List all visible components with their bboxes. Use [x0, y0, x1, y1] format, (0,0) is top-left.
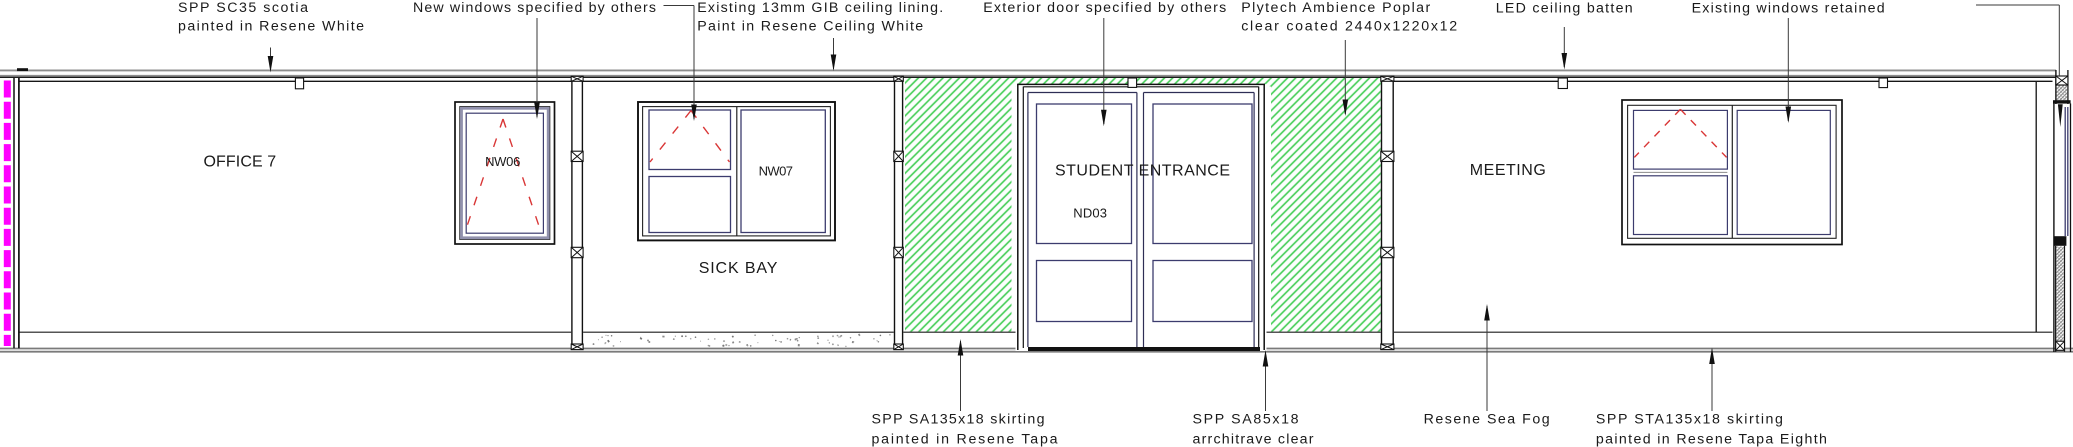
svg-text:LED ceiling batten: LED ceiling batten [1496, 0, 1633, 16]
svg-text:STUDENT ENTRANCE: STUDENT ENTRANCE [1055, 162, 1230, 179]
svg-text:Exterior door specified by oth: Exterior door specified by others [983, 0, 1226, 16]
svg-text:Paint in Resene Ceiling White: Paint in Resene Ceiling White [697, 18, 923, 34]
svg-text:Resene Sea Fog: Resene Sea Fog [1424, 411, 1550, 427]
svg-text:SPP SA135x18 skirting: SPP SA135x18 skirting [872, 411, 1045, 427]
svg-text:New windows specified by other: New windows specified by others [413, 0, 656, 16]
svg-text:painted in Resene White: painted in Resene White [178, 18, 364, 34]
svg-text:Existing windows retained: Existing windows retained [1692, 0, 1885, 16]
svg-text:NW07: NW07 [759, 164, 793, 179]
svg-text:arrchitrave clear: arrchitrave clear [1193, 432, 1314, 447]
svg-text:ND03: ND03 [1073, 205, 1107, 220]
svg-text:clear coated 2440x1220x12: clear coated 2440x1220x12 [1241, 18, 1457, 34]
svg-text:SICK BAY: SICK BAY [699, 260, 778, 277]
svg-text:SPP STA135x18 skirting: SPP STA135x18 skirting [1596, 411, 1783, 427]
svg-text:MEETING: MEETING [1470, 162, 1546, 179]
svg-text:NW06: NW06 [485, 154, 520, 169]
svg-text:painted in Resene Tapa Eighth: painted in Resene Tapa Eighth [1596, 432, 1827, 447]
svg-text:Plytech Ambience Poplar: Plytech Ambience Poplar [1241, 0, 1430, 16]
svg-text:OFFICE 7: OFFICE 7 [204, 154, 277, 171]
svg-text:painted in Resene Tapa: painted in Resene Tapa [872, 432, 1058, 447]
svg-text:SPP SA85x18: SPP SA85x18 [1193, 411, 1299, 427]
